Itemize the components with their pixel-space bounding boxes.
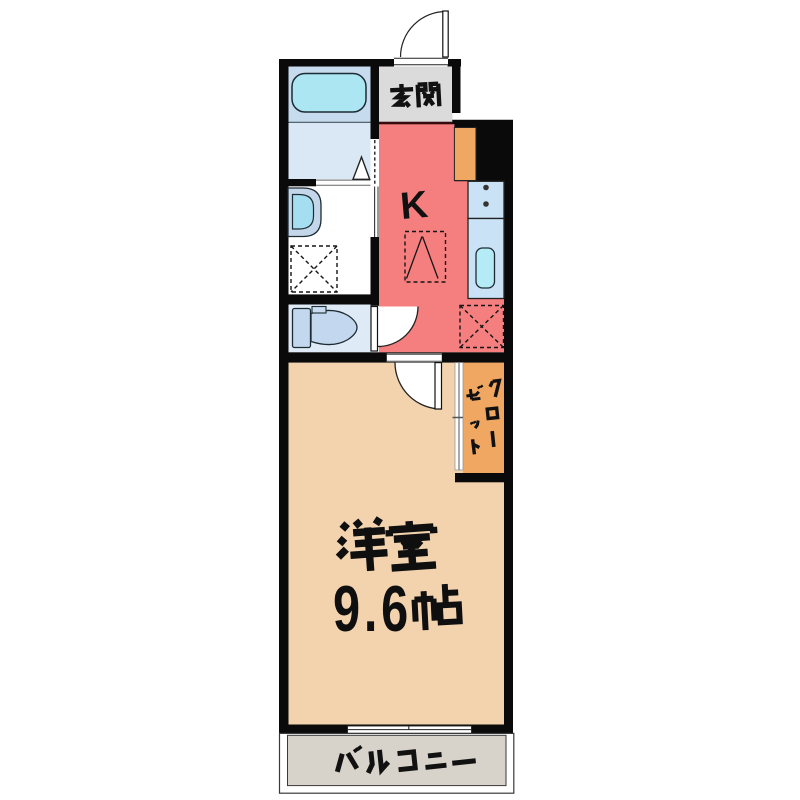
svg-text:9.6: 9.6 xyxy=(333,573,412,645)
svg-text:K: K xyxy=(399,184,431,228)
